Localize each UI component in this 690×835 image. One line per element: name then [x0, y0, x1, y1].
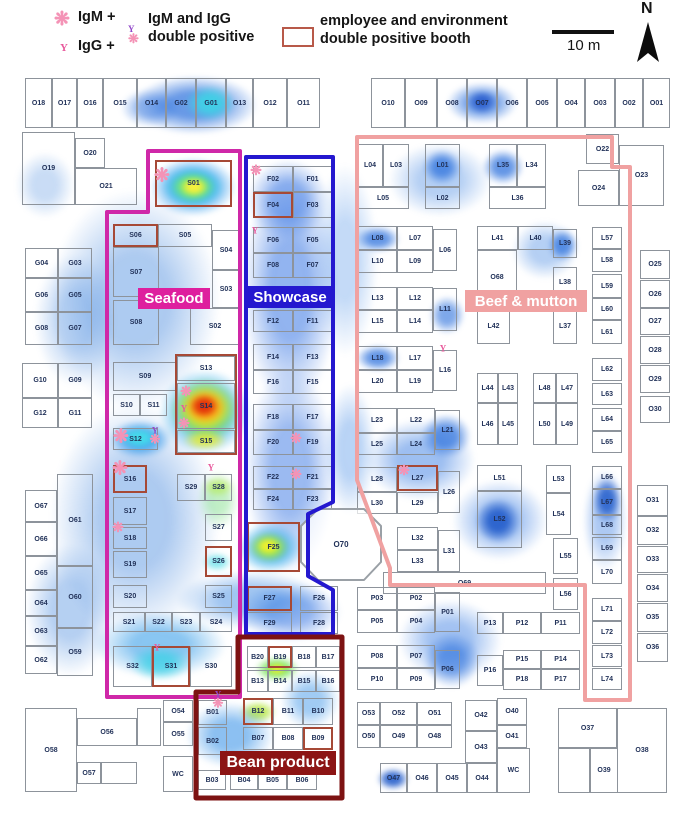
market-heatmap-figure: ❋ IgM + Y IgG + Y❋ IgM and IgG double po…	[0, 0, 690, 835]
region-label-beef-mutton: Beef & mutton	[465, 290, 587, 312]
region-label-bean-product: Bean product	[220, 751, 336, 775]
region-label-o70: O70	[318, 536, 364, 552]
region-label-seafood: Seafood	[138, 288, 210, 309]
region-label-layer: SeafoodShowcaseBeef & muttonBean product…	[0, 0, 690, 835]
region-label-showcase: Showcase	[246, 286, 334, 308]
